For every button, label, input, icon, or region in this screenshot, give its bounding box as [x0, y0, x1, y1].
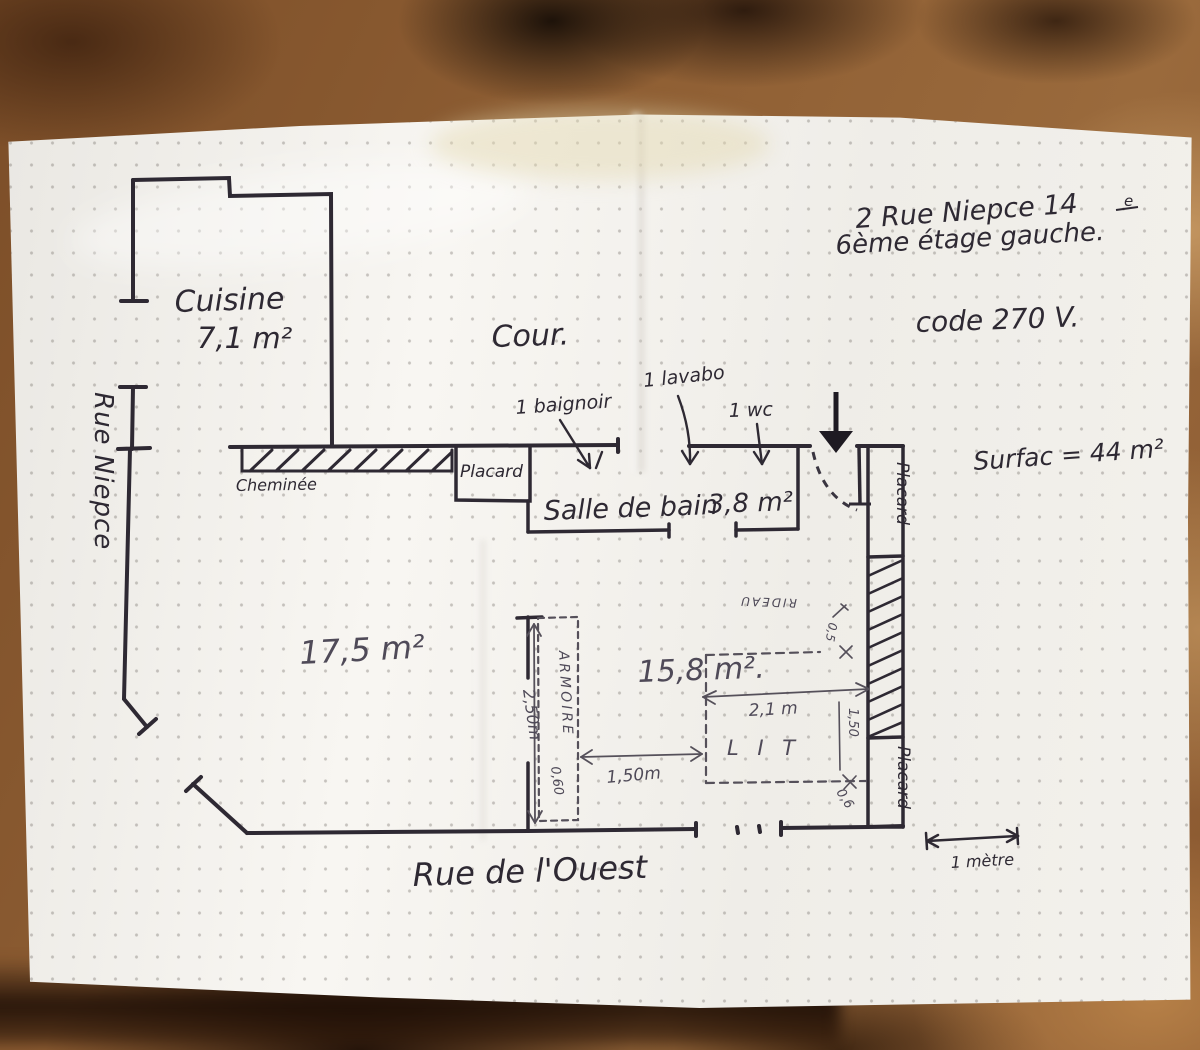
kitchen-area-label: 7,1 m² [197, 321, 293, 355]
wardrobe-label: ARMOIRE [555, 649, 576, 737]
living-area-label: 17,5 m² [298, 627, 425, 672]
floor-plan-drawing: 2 Rue Niepce 14 e 6ème étage gauche. cod… [0, 0, 1200, 1050]
kitchen-name-label: Cuisine [174, 281, 285, 320]
scale-label: 1 mètre [950, 850, 1014, 872]
dim-bed-width: 2,1 m [748, 698, 798, 721]
scale-bar [926, 828, 1018, 849]
bathroom-area-label: 3,8 m² [707, 487, 793, 520]
wall-hatch [868, 560, 903, 737]
door-swing-arc [813, 452, 857, 510]
street-left-label: Rue Niepce [88, 392, 118, 550]
curtain-label: RIDEAU [739, 594, 797, 610]
dim-bed-length: 1,50 [845, 708, 860, 737]
wc-label: 1 wc [728, 398, 773, 422]
entrance-arrow-icon [819, 431, 853, 453]
courtyard-label: Cour. [491, 317, 570, 355]
closet-top-label: Placard [460, 462, 523, 482]
chimney-label: Cheminée [236, 475, 317, 495]
bath-label: 1 baignoir [515, 390, 613, 419]
furniture-and-dimensions [527, 604, 869, 823]
bed-label: L I T [727, 736, 801, 760]
closet-right-top-label: Placard [892, 462, 912, 525]
street-bottom-label: Rue de l'Ouest [412, 848, 649, 894]
bathroom-name-label: Salle de bain [543, 490, 718, 527]
closet-right-bottom-label: Placard [893, 746, 913, 809]
door-code-label: code 270 V. [915, 300, 1080, 339]
chimney-hatch [242, 449, 452, 471]
dim-curtain-depth: 0,5 [823, 621, 840, 642]
entrance-door [813, 392, 871, 510]
dim-line-150h [581, 747, 702, 764]
surface-label: Surfac = 44 m² [972, 434, 1164, 476]
sink-label: 1 lavabo [642, 362, 725, 392]
dim-gap-armoire-bed: 1,50m [606, 763, 662, 788]
dim-wardrobe-depth: 0,60 [547, 765, 566, 796]
dim-wardrobe-length: 2,50m [519, 688, 545, 741]
bedroom-area-label: 15,8 m². [637, 651, 765, 690]
dim-bed-to-wall: 0,6 [833, 786, 857, 811]
labels: 2 Rue Niepce 14 e 6ème étage gauche. cod… [88, 189, 1165, 894]
